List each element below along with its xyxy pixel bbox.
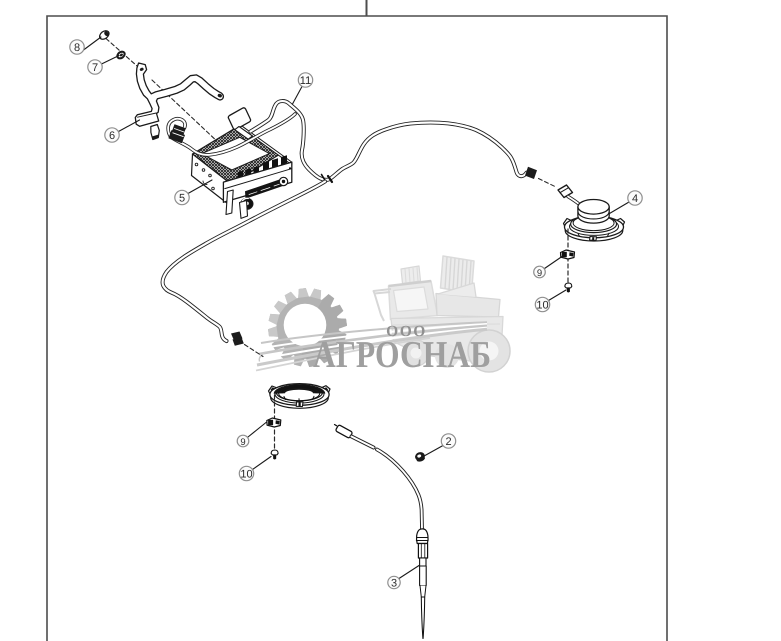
svg-text:10: 10 [536, 300, 548, 312]
svg-text:9: 9 [537, 268, 542, 279]
svg-text:5: 5 [179, 193, 185, 205]
svg-text:7: 7 [92, 62, 98, 74]
svg-text:АГРОСНАБ: АГРОСНАБ [313, 334, 491, 376]
svg-text:9: 9 [240, 437, 245, 448]
svg-text:6: 6 [109, 130, 115, 142]
svg-text:10: 10 [240, 469, 252, 481]
svg-text:8: 8 [74, 42, 80, 54]
svg-text:2: 2 [445, 436, 451, 448]
svg-text:3: 3 [391, 577, 397, 589]
svg-text:11: 11 [300, 75, 311, 87]
svg-text:4: 4 [632, 193, 638, 205]
